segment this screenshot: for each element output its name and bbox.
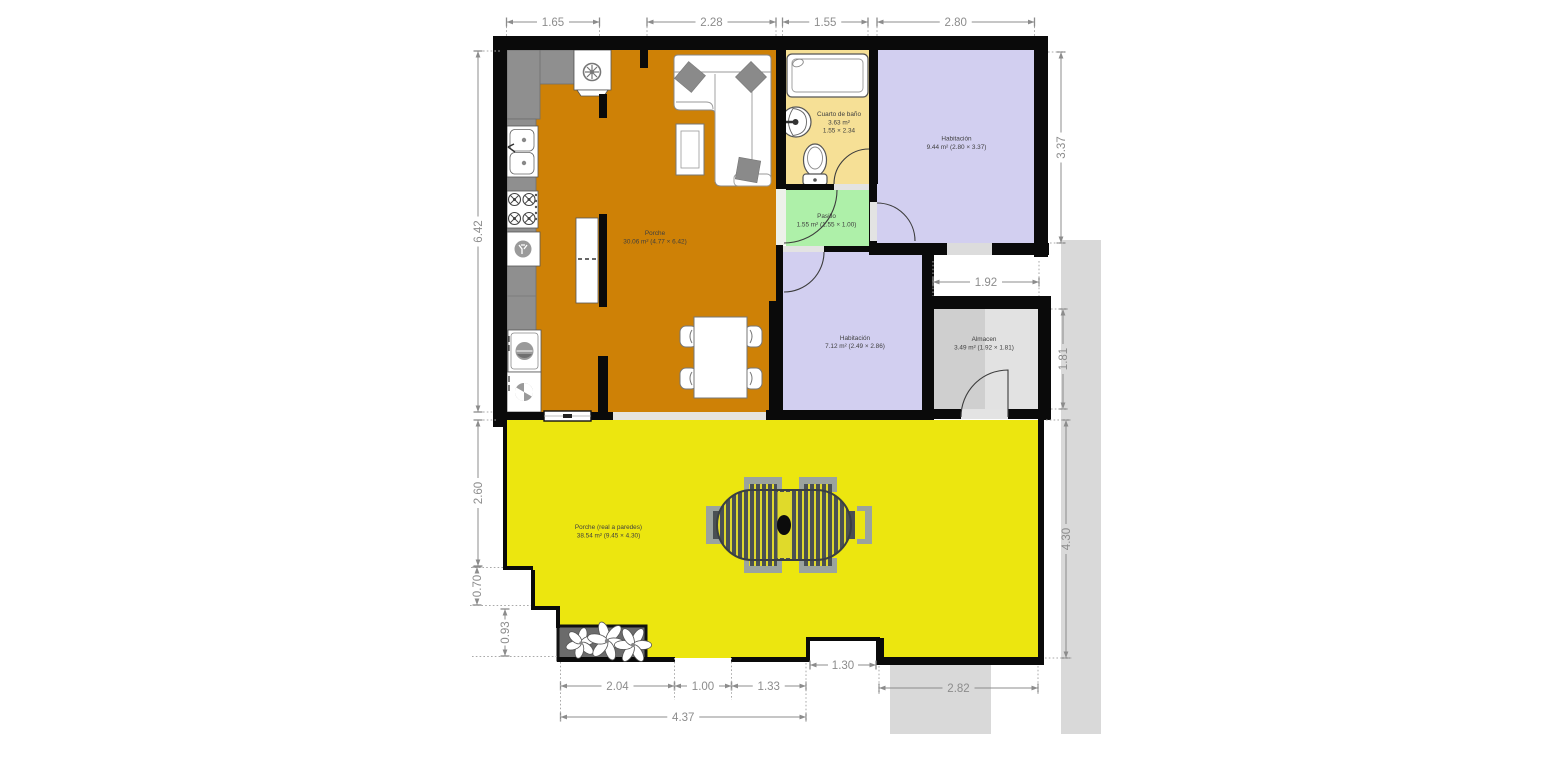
svg-text:3.63 m²: 3.63 m² <box>828 119 850 126</box>
svg-text:Porche (real a paredes): Porche (real a paredes) <box>575 524 642 531</box>
svg-text:4.37: 4.37 <box>672 712 694 724</box>
svg-text:3.49 m² (1.92 × 1.81): 3.49 m² (1.92 × 1.81) <box>954 344 1014 351</box>
svg-text:1.65: 1.65 <box>542 17 564 29</box>
svg-text:30.06 m² (4.77 × 6.42): 30.06 m² (4.77 × 6.42) <box>623 239 686 246</box>
svg-text:2.82: 2.82 <box>947 683 969 695</box>
svg-text:6.42: 6.42 <box>473 220 485 242</box>
svg-text:1.81: 1.81 <box>1058 348 1070 370</box>
svg-text:2.04: 2.04 <box>606 681 629 693</box>
svg-text:3.37: 3.37 <box>1056 136 1068 158</box>
svg-text:Pasillo: Pasillo <box>817 213 836 220</box>
svg-text:1.30: 1.30 <box>832 660 854 672</box>
svg-text:2.28: 2.28 <box>700 17 722 29</box>
svg-text:Cuarto de baño: Cuarto de baño <box>817 111 862 118</box>
svg-text:2.80: 2.80 <box>945 17 967 29</box>
svg-text:1.92: 1.92 <box>975 277 997 289</box>
svg-text:7.12 m² (2.49 × 2.86): 7.12 m² (2.49 × 2.86) <box>825 343 885 350</box>
svg-text:Almacen: Almacen <box>972 336 997 343</box>
svg-text:0.70: 0.70 <box>472 575 484 597</box>
svg-text:1.55 m² (1.55 × 1.00): 1.55 m² (1.55 × 1.00) <box>797 221 857 228</box>
svg-text:9.44 m² (2.80 × 3.37): 9.44 m² (2.80 × 3.37) <box>927 144 987 151</box>
svg-text:Porche: Porche <box>645 230 666 237</box>
svg-text:2.60: 2.60 <box>473 482 485 504</box>
svg-text:Habitación: Habitación <box>941 136 972 143</box>
svg-text:1.55: 1.55 <box>814 17 836 29</box>
svg-text:1.33: 1.33 <box>758 681 780 693</box>
svg-text:0.93: 0.93 <box>500 621 512 643</box>
svg-text:1.00: 1.00 <box>692 681 714 693</box>
svg-text:Habitación: Habitación <box>840 335 871 342</box>
svg-text:38.54 m² (9.45 × 4.30): 38.54 m² (9.45 × 4.30) <box>577 533 640 540</box>
svg-text:1.55 × 2.34: 1.55 × 2.34 <box>823 128 856 135</box>
svg-text:4.30: 4.30 <box>1061 528 1073 550</box>
